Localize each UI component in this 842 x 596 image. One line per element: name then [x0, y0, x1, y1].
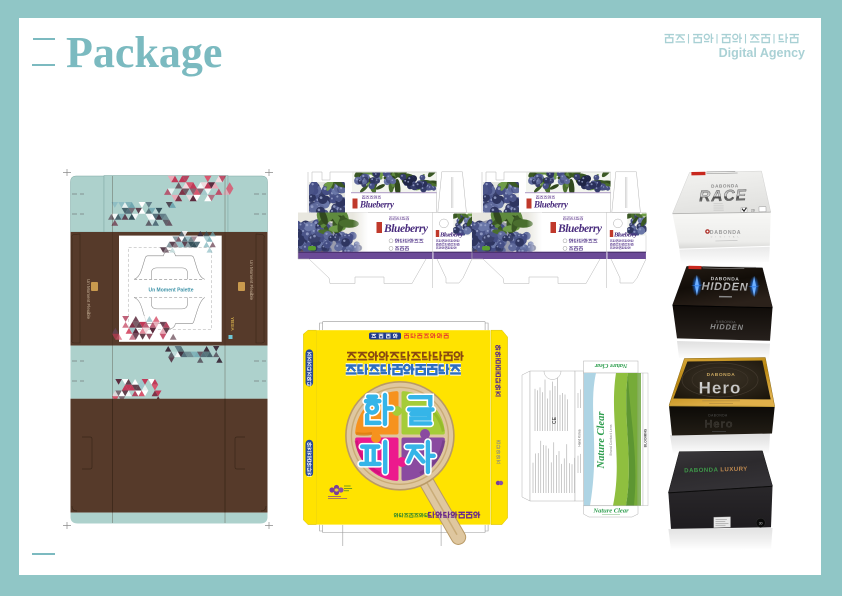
svg-text:D I G I T A L: D I G I T A L	[711, 236, 740, 239]
svg-text:Un Moment Flexible: Un Moment Flexible	[249, 260, 254, 301]
svg-text:Blueberry: Blueberry	[359, 200, 395, 210]
svg-text:Un Moment Palette: Un Moment Palette	[148, 287, 193, 293]
svg-text:Nature Clear: Nature Clear	[594, 362, 628, 368]
svg-text:HIDDEN: HIDDEN	[701, 281, 748, 294]
svg-text:Hero: Hero	[704, 419, 733, 431]
svg-text:30: 30	[759, 521, 763, 525]
svg-text:DABONDA: DABONDA	[716, 320, 737, 325]
svg-text:DABONDA: DABONDA	[710, 230, 741, 236]
svg-text:Blueberry: Blueberry	[557, 223, 603, 235]
svg-text:Hand Korea: Hand Korea	[578, 429, 582, 446]
svg-text:Brand Contact Lens: Brand Contact Lens	[609, 424, 613, 455]
svg-text:CE: CE	[552, 416, 558, 424]
svg-text:Blueberry: Blueberry	[613, 232, 637, 239]
svg-text:Hero: Hero	[699, 379, 742, 398]
svg-text:Nature Clear: Nature Clear	[592, 508, 629, 515]
svg-text:DABONDA: DABONDA	[707, 372, 736, 378]
svg-text:Blueberry: Blueberry	[533, 200, 569, 210]
svg-text:BLOOMING: BLOOMING	[644, 428, 648, 447]
svg-text:Un Moment Flexible: Un Moment Flexible	[86, 279, 91, 320]
svg-text:Blueberry: Blueberry	[383, 223, 429, 235]
svg-text:YBSIA: YBSIA	[230, 317, 235, 332]
svg-text:RACE: RACE	[699, 187, 747, 205]
svg-text:20: 20	[751, 208, 755, 212]
svg-text:DABONDA: DABONDA	[708, 414, 728, 418]
svg-text:Blueberry: Blueberry	[439, 232, 463, 239]
svg-text:Nature Clear: Nature Clear	[596, 411, 607, 470]
